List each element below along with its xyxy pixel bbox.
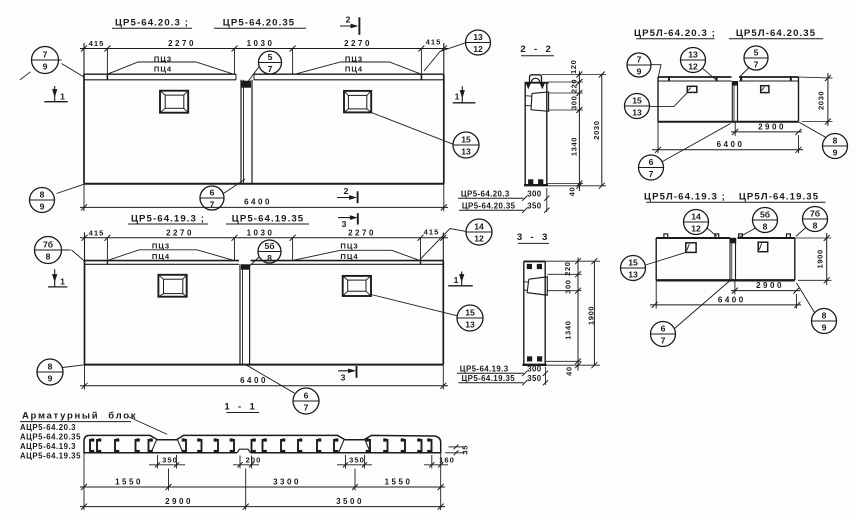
svg-text:2270: 2270 bbox=[168, 39, 196, 48]
svg-text:ПЦ3: ПЦ3 bbox=[345, 54, 363, 63]
svg-text:2 - 2: 2 - 2 bbox=[520, 44, 553, 55]
svg-text:13: 13 bbox=[461, 146, 471, 156]
svg-text:1900: 1900 bbox=[815, 249, 824, 268]
svg-text:5б: 5б bbox=[264, 241, 274, 251]
svg-text:40: 40 bbox=[564, 366, 573, 376]
svg-text:2900: 2900 bbox=[165, 497, 193, 506]
svg-text:300: 300 bbox=[570, 96, 579, 110]
svg-text:9: 9 bbox=[833, 147, 838, 157]
svg-text:5: 5 bbox=[268, 52, 273, 62]
svg-text:6400: 6400 bbox=[240, 376, 268, 385]
svg-text:ЦР5-64.20.3: ЦР5-64.20.3 bbox=[461, 189, 510, 198]
svg-text:6400: 6400 bbox=[244, 198, 272, 207]
svg-text:7: 7 bbox=[649, 169, 654, 179]
svg-text:ПЦ4: ПЦ4 bbox=[152, 252, 170, 261]
svg-text:415: 415 bbox=[426, 38, 442, 47]
svg-text:ПЦ3: ПЦ3 bbox=[152, 242, 170, 251]
svg-text:8: 8 bbox=[48, 361, 53, 371]
svg-text:3: 3 bbox=[342, 219, 347, 229]
svg-text:7: 7 bbox=[661, 335, 666, 345]
svg-text:15: 15 bbox=[465, 307, 475, 317]
svg-text:Арматурныйблок: Арматурныйблок bbox=[22, 410, 137, 421]
svg-text:12: 12 bbox=[688, 61, 698, 71]
svg-text:13: 13 bbox=[628, 269, 638, 279]
svg-text:415: 415 bbox=[424, 228, 440, 237]
svg-text:5: 5 bbox=[754, 47, 759, 57]
svg-text:1900: 1900 bbox=[587, 306, 596, 325]
svg-text:8: 8 bbox=[833, 135, 838, 145]
svg-text:12: 12 bbox=[474, 233, 484, 243]
svg-text:13: 13 bbox=[473, 32, 483, 42]
svg-text:6: 6 bbox=[661, 323, 666, 333]
svg-text:200: 200 bbox=[246, 455, 262, 464]
svg-text:АЦР5-64.20.35: АЦР5-64.20.35 bbox=[20, 433, 81, 442]
svg-text:13: 13 bbox=[465, 319, 475, 329]
svg-text:2270: 2270 bbox=[166, 229, 194, 238]
svg-text:2270: 2270 bbox=[348, 229, 376, 238]
svg-text:ПЦ3: ПЦ3 bbox=[340, 242, 358, 251]
svg-text:9: 9 bbox=[822, 322, 827, 332]
svg-text:ЦР5-64.19.35: ЦР5-64.19.35 bbox=[462, 374, 516, 383]
svg-text:ПЦ3: ПЦ3 bbox=[154, 54, 172, 63]
svg-text:1340: 1340 bbox=[570, 137, 579, 156]
svg-text:6: 6 bbox=[210, 187, 215, 197]
svg-text:7: 7 bbox=[754, 59, 759, 69]
svg-text:7: 7 bbox=[304, 402, 309, 412]
svg-text:2: 2 bbox=[344, 186, 349, 196]
svg-text:14: 14 bbox=[691, 211, 701, 221]
svg-text:АЦР5-64.19.3: АЦР5-64.19.3 bbox=[20, 442, 76, 451]
svg-text:ПЦ4: ПЦ4 bbox=[340, 252, 358, 261]
svg-text:3300: 3300 bbox=[273, 477, 301, 486]
svg-text:1550: 1550 bbox=[115, 477, 143, 486]
svg-text:ЦР5Л-64.20.35: ЦР5Л-64.20.35 bbox=[736, 28, 816, 39]
svg-text:7: 7 bbox=[637, 54, 642, 64]
svg-text:415: 415 bbox=[89, 39, 105, 48]
svg-text:1: 1 bbox=[454, 275, 459, 285]
svg-text:300: 300 bbox=[527, 189, 542, 198]
svg-text:6400: 6400 bbox=[718, 295, 746, 304]
svg-text:ЦР5-64.19.3: ЦР5-64.19.3 bbox=[460, 364, 509, 373]
svg-text:7б: 7б bbox=[43, 239, 53, 249]
svg-text:6: 6 bbox=[649, 157, 654, 167]
svg-text:8: 8 bbox=[46, 251, 51, 261]
svg-text:220: 220 bbox=[563, 261, 572, 275]
svg-text:2900: 2900 bbox=[756, 281, 784, 290]
svg-text:9: 9 bbox=[40, 201, 45, 211]
svg-text:6: 6 bbox=[304, 390, 309, 400]
svg-text:2030: 2030 bbox=[817, 91, 826, 110]
svg-text:ЦР5-64.19.3 ;: ЦР5-64.19.3 ; bbox=[131, 213, 205, 224]
svg-text:13: 13 bbox=[688, 49, 698, 59]
svg-text:ЦР5-64.20.3 ;: ЦР5-64.20.3 ; bbox=[115, 18, 189, 29]
svg-text:8: 8 bbox=[822, 310, 827, 320]
svg-text:120: 120 bbox=[569, 60, 578, 74]
svg-text:3500: 3500 bbox=[336, 497, 364, 506]
svg-text:8: 8 bbox=[813, 220, 818, 230]
svg-text:40: 40 bbox=[568, 187, 577, 197]
svg-text:ПЦ4: ПЦ4 bbox=[345, 65, 363, 74]
svg-text:ЦР5Л-64.19.35: ЦР5Л-64.19.35 bbox=[739, 192, 819, 203]
svg-text:9: 9 bbox=[637, 66, 642, 76]
svg-text:1: 1 bbox=[60, 91, 65, 101]
svg-text:8: 8 bbox=[267, 253, 272, 263]
svg-text:АЦР5-64.19.35: АЦР5-64.19.35 bbox=[20, 452, 81, 461]
svg-text:350: 350 bbox=[349, 455, 365, 464]
svg-text:ЦР5Л-64.20.3 ;: ЦР5Л-64.20.3 ; bbox=[634, 28, 716, 39]
svg-text:ЦР5-64.20.35: ЦР5-64.20.35 bbox=[223, 18, 295, 29]
svg-text:1 - 1: 1 - 1 bbox=[224, 401, 257, 412]
svg-text:9: 9 bbox=[43, 61, 48, 71]
svg-text:1550: 1550 bbox=[385, 477, 413, 486]
svg-text:2270: 2270 bbox=[344, 39, 372, 48]
svg-text:9: 9 bbox=[48, 373, 53, 383]
svg-text:300: 300 bbox=[527, 364, 542, 373]
svg-text:12: 12 bbox=[473, 44, 483, 54]
svg-text:6400: 6400 bbox=[717, 140, 745, 149]
svg-text:160: 160 bbox=[439, 456, 455, 465]
svg-text:7б: 7б bbox=[810, 208, 820, 218]
svg-text:1340: 1340 bbox=[564, 320, 573, 339]
svg-text:3: 3 bbox=[341, 372, 346, 382]
svg-text:15: 15 bbox=[628, 257, 638, 267]
svg-text:1: 1 bbox=[60, 276, 65, 286]
svg-text:7: 7 bbox=[43, 49, 48, 59]
svg-text:2030: 2030 bbox=[592, 120, 601, 139]
svg-text:350: 350 bbox=[527, 374, 542, 383]
svg-text:3 - 3: 3 - 3 bbox=[517, 232, 550, 243]
svg-text:1: 1 bbox=[455, 92, 460, 102]
svg-text:8: 8 bbox=[763, 221, 768, 231]
svg-text:АЦР5-64.20.3: АЦР5-64.20.3 bbox=[20, 423, 76, 432]
svg-text:ПЦ4: ПЦ4 bbox=[154, 65, 172, 74]
svg-text:ЦР5-64.19.35: ЦР5-64.19.35 bbox=[232, 213, 304, 224]
svg-text:12: 12 bbox=[691, 223, 701, 233]
svg-text:1030: 1030 bbox=[247, 39, 275, 48]
svg-text:15: 15 bbox=[461, 134, 471, 144]
svg-text:2: 2 bbox=[346, 15, 351, 25]
svg-text:1030: 1030 bbox=[247, 229, 275, 238]
svg-text:350: 350 bbox=[527, 201, 542, 210]
svg-text:5б: 5б bbox=[760, 209, 770, 219]
svg-text:35: 35 bbox=[461, 445, 470, 455]
svg-text:220: 220 bbox=[570, 79, 579, 93]
svg-text:350: 350 bbox=[162, 455, 178, 464]
svg-text:15: 15 bbox=[632, 95, 642, 105]
svg-text:13: 13 bbox=[632, 107, 642, 117]
svg-text:2900: 2900 bbox=[758, 122, 786, 131]
svg-text:300: 300 bbox=[564, 279, 573, 293]
svg-text:ЦР5-64.20.35: ЦР5-64.20.35 bbox=[462, 201, 516, 210]
svg-text:7: 7 bbox=[268, 64, 273, 74]
svg-text:415: 415 bbox=[89, 229, 105, 238]
svg-text:14: 14 bbox=[474, 221, 484, 231]
svg-text:ЦР5Л-64.19.3 ;: ЦР5Л-64.19.3 ; bbox=[644, 192, 726, 203]
svg-text:8: 8 bbox=[40, 189, 45, 199]
